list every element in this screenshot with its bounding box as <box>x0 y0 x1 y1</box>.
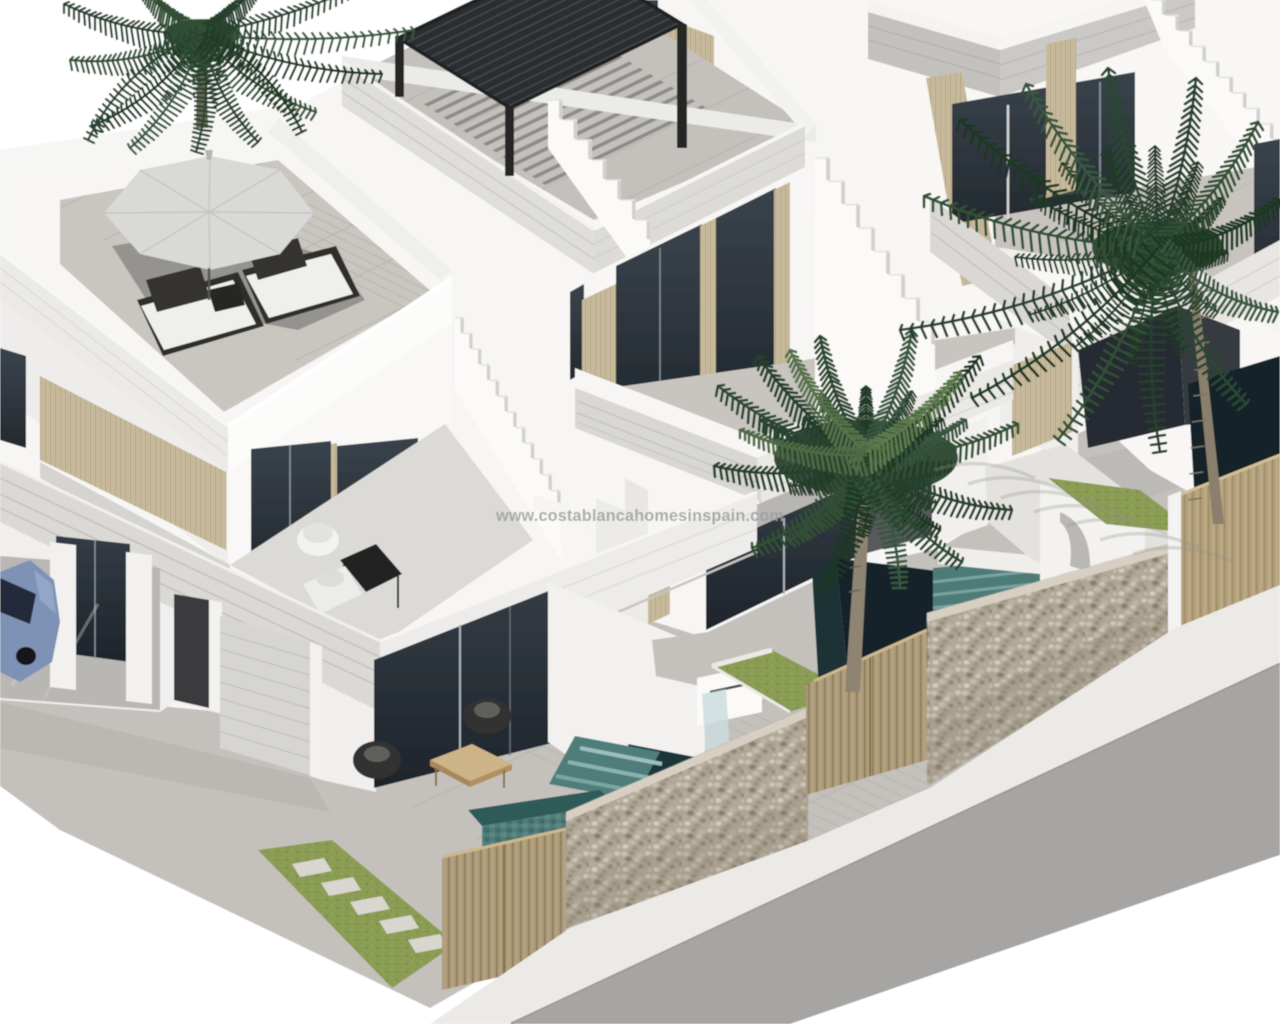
svg-text:www.costablancahomesinspain.co: www.costablancahomesinspain.com <box>495 507 784 525</box>
